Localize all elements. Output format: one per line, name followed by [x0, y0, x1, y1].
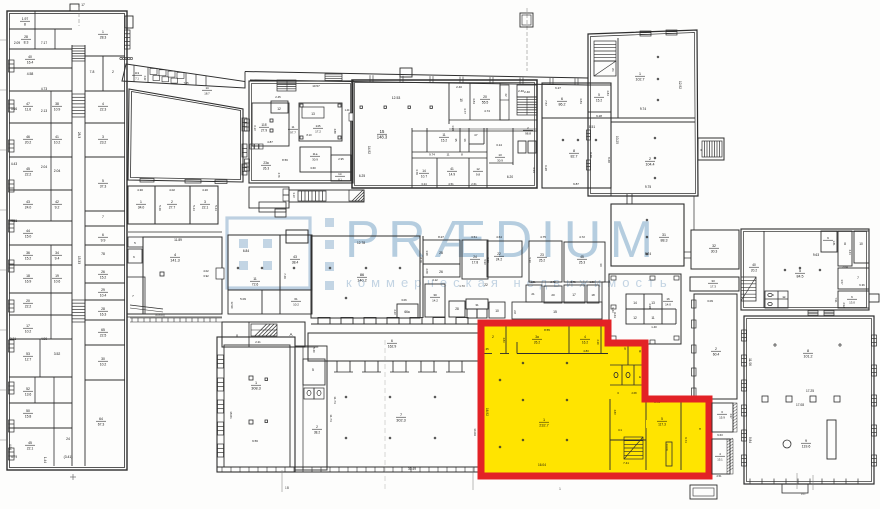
- svg-text:119: 119: [135, 71, 140, 75]
- svg-text:Д: Д: [639, 349, 641, 353]
- svg-text:22.1: 22.1: [27, 447, 34, 451]
- svg-text:Л1: Л1: [611, 68, 615, 72]
- svg-text:6.27: 6.27: [555, 86, 561, 90]
- svg-text:12.78: 12.78: [357, 241, 365, 245]
- svg-text:22.5: 22.5: [100, 334, 107, 338]
- svg-text:44: 44: [26, 229, 30, 233]
- svg-text:4.75: 4.75: [540, 235, 546, 239]
- svg-text:4.94: 4.94: [8, 444, 12, 450]
- svg-text:67.3: 67.3: [98, 423, 105, 427]
- svg-text:52: 52: [26, 387, 30, 391]
- svg-text:14.9: 14.9: [449, 173, 455, 177]
- svg-text:1.44: 1.44: [43, 457, 47, 463]
- svg-text:8.78: 8.78: [419, 257, 423, 263]
- svg-text:4 Г: 4 Г: [474, 133, 478, 137]
- svg-text:22: 22: [504, 93, 508, 97]
- svg-text:3: 3: [102, 135, 104, 139]
- svg-text:86.2: 86.2: [559, 103, 566, 107]
- svg-text:28.3: 28.3: [100, 36, 107, 40]
- svg-text:8.68: 8.68: [589, 152, 593, 158]
- svg-text:3.60: 3.60: [310, 166, 316, 170]
- svg-text:101.2: 101.2: [804, 355, 813, 359]
- svg-text:3.21: 3.21: [10, 337, 16, 341]
- svg-text:20.2: 20.2: [751, 269, 757, 273]
- svg-text:24: 24: [66, 437, 70, 441]
- svg-text:9.87: 9.87: [573, 182, 579, 186]
- svg-text:9.56: 9.56: [252, 439, 258, 443]
- svg-text:53: 53: [26, 352, 30, 356]
- svg-text:1: 1: [543, 418, 545, 422]
- svg-text:9.75: 9.75: [645, 185, 651, 189]
- svg-text:9.63: 9.63: [717, 433, 723, 437]
- svg-text:2.21: 2.21: [255, 340, 261, 344]
- svg-text:34: 34: [55, 251, 59, 255]
- svg-text:61: 61: [294, 297, 298, 301]
- svg-text:66а: 66а: [404, 310, 410, 314]
- svg-text:23.2: 23.2: [100, 141, 107, 145]
- svg-text:9.2: 9.2: [55, 206, 60, 210]
- svg-text:65: 65: [101, 328, 105, 332]
- svg-text:3.98: 3.98: [425, 250, 429, 256]
- svg-text:88.3: 88.3: [661, 239, 668, 243]
- svg-text:2: 2: [112, 70, 114, 74]
- svg-text:Восход: Восход: [155, 313, 165, 317]
- svg-text:15.33: 15.33: [77, 256, 81, 264]
- svg-text:15.8: 15.8: [25, 415, 32, 419]
- svg-text:29: 29: [101, 288, 105, 292]
- svg-text:72.6: 72.6: [252, 283, 259, 287]
- svg-text:4.45: 4.45: [11, 219, 17, 223]
- svg-text:2: 2: [492, 335, 494, 339]
- svg-text:6.36: 6.36: [859, 283, 865, 287]
- svg-text:16: 16: [666, 297, 670, 301]
- svg-text:6.10: 6.10: [253, 125, 257, 131]
- svg-text:26: 26: [439, 270, 443, 274]
- svg-text:11г: 11г: [338, 173, 342, 176]
- svg-text:14: 14: [205, 86, 209, 90]
- svg-text:12: 12: [476, 167, 480, 171]
- svg-text:2.72: 2.72: [550, 280, 556, 284]
- svg-text:3.75: 3.75: [570, 280, 576, 284]
- svg-text:30.9: 30.9: [497, 159, 503, 163]
- svg-text:5.44: 5.44: [192, 205, 196, 211]
- svg-text:13: 13: [311, 112, 315, 116]
- svg-text:9: 9: [624, 347, 626, 351]
- svg-text:11.06: 11.06: [748, 358, 752, 366]
- svg-text:8: 8: [807, 349, 809, 353]
- svg-text:2.95: 2.95: [338, 157, 344, 161]
- svg-text:50: 50: [26, 409, 30, 413]
- svg-text:20.2: 20.2: [25, 141, 32, 145]
- svg-text:15.2: 15.2: [25, 257, 32, 261]
- svg-text:17: 17: [572, 293, 576, 297]
- svg-text:1: 1: [140, 200, 142, 204]
- svg-text:Е: Е: [639, 375, 641, 379]
- svg-text:4.80: 4.80: [613, 409, 617, 415]
- svg-text:30: 30: [433, 293, 437, 297]
- svg-text:9.4: 9.4: [55, 257, 60, 261]
- svg-text:2.13: 2.13: [41, 109, 47, 113]
- svg-text:15.2: 15.2: [441, 139, 447, 143]
- svg-text:7: 7: [102, 215, 104, 219]
- svg-text:4: 4: [174, 253, 176, 257]
- svg-text:30.3: 30.3: [711, 250, 718, 254]
- svg-text:4.74: 4.74: [484, 109, 490, 113]
- svg-text:3.10: 3.10: [292, 192, 296, 198]
- svg-text:9.43: 9.43: [611, 307, 615, 313]
- svg-text:6: 6: [391, 339, 393, 343]
- svg-text:15.2: 15.2: [100, 276, 107, 280]
- svg-text:2: 2: [527, 126, 529, 130]
- svg-text:11: 11: [651, 316, 655, 320]
- svg-text:16.04: 16.04: [538, 463, 546, 467]
- svg-text:9.84: 9.84: [748, 437, 752, 443]
- svg-text:2.08: 2.08: [425, 268, 429, 274]
- svg-text:37.3: 37.3: [100, 185, 107, 189]
- svg-text:2.04: 2.04: [41, 165, 47, 169]
- svg-text:12.53: 12.53: [392, 96, 401, 100]
- svg-text:С1: С1: [618, 428, 622, 432]
- svg-text:5.09: 5.09: [240, 297, 246, 301]
- svg-text:4.64: 4.64: [496, 235, 502, 239]
- svg-text:8.10: 8.10: [306, 133, 312, 137]
- svg-text:9.74: 9.74: [429, 153, 435, 157]
- svg-text:18: 18: [591, 293, 595, 297]
- svg-text:21: 21: [531, 292, 535, 296]
- svg-text:2.8: 2.8: [513, 310, 517, 314]
- svg-text:30.9: 30.9: [312, 158, 318, 162]
- svg-text:28: 28: [455, 307, 459, 311]
- svg-text:12.7: 12.7: [25, 358, 32, 362]
- svg-text:34.0: 34.0: [138, 206, 145, 210]
- svg-text:9: 9: [805, 439, 807, 443]
- svg-text:17.25: 17.25: [806, 389, 814, 393]
- svg-text:42: 42: [55, 200, 59, 204]
- svg-text:41: 41: [55, 135, 59, 139]
- svg-text:31: 31: [662, 233, 666, 237]
- svg-text:7.41: 7.41: [623, 461, 629, 465]
- svg-text:2.51: 2.51: [716, 474, 722, 478]
- svg-text:4.88: 4.88: [333, 128, 337, 134]
- svg-text:15: 15: [459, 98, 463, 102]
- svg-text:19: 19: [55, 274, 59, 278]
- svg-text:1: 1: [639, 72, 641, 76]
- svg-text:45: 45: [28, 441, 32, 445]
- svg-text:38: 38: [55, 102, 59, 106]
- svg-text:2.39: 2.39: [596, 339, 600, 345]
- svg-text:140.2: 140.2: [357, 279, 367, 283]
- svg-text:13.09: 13.09: [665, 444, 669, 451]
- svg-text:8.51: 8.51: [589, 125, 595, 129]
- svg-text:П: П: [699, 427, 701, 431]
- svg-text:7: 7: [132, 294, 134, 298]
- svg-text:3.24: 3.24: [421, 182, 427, 186]
- svg-text:16.92: 16.92: [485, 408, 489, 416]
- svg-text:13.0: 13.0: [849, 301, 855, 305]
- svg-text:4.30: 4.30: [137, 188, 143, 192]
- svg-text:27.9: 27.9: [261, 129, 267, 133]
- svg-text:14б: 14б: [315, 124, 320, 128]
- svg-text:4.83: 4.83: [502, 337, 506, 343]
- svg-text:27.7: 27.7: [169, 206, 176, 210]
- svg-text:14.92: 14.92: [367, 146, 371, 154]
- svg-text:1.97: 1.97: [22, 17, 29, 21]
- svg-text:11: 11: [253, 277, 257, 281]
- svg-text:22: 22: [484, 283, 488, 287]
- svg-text:17.2: 17.2: [315, 130, 321, 134]
- svg-text:22.1: 22.1: [202, 206, 209, 210]
- svg-text:4.20: 4.20: [202, 188, 208, 192]
- svg-text:4.33: 4.33: [532, 167, 536, 173]
- svg-text:7.8: 7.8: [90, 70, 95, 74]
- svg-text:117.3: 117.3: [658, 423, 666, 427]
- svg-text:5: 5: [102, 179, 104, 183]
- svg-text:5: 5: [598, 93, 600, 97]
- svg-text:А: А: [289, 332, 292, 337]
- svg-text:7: 7: [857, 276, 859, 280]
- svg-text:5: 5: [661, 417, 663, 421]
- svg-text:60.4: 60.4: [713, 353, 720, 357]
- svg-text:9.8: 9.8: [476, 173, 481, 177]
- svg-text:2.40: 2.40: [456, 85, 462, 89]
- svg-text:9.74: 9.74: [684, 437, 688, 443]
- svg-text:12: 12: [633, 316, 637, 320]
- svg-text:14: 14: [633, 301, 637, 305]
- svg-text:232.7: 232.7: [539, 424, 549, 428]
- svg-text:14: 14: [422, 169, 426, 173]
- svg-text:30.49: 30.49: [408, 467, 416, 471]
- svg-text:141.3: 141.3: [170, 259, 180, 263]
- svg-text:40: 40: [752, 263, 756, 267]
- svg-text:4.83: 4.83: [583, 349, 589, 353]
- svg-text:2.98: 2.98: [648, 303, 652, 309]
- svg-text:11: 11: [446, 153, 449, 157]
- svg-text:20: 20: [483, 95, 487, 99]
- svg-text:18.81: 18.81: [229, 411, 233, 419]
- svg-text:6: 6: [102, 233, 104, 237]
- svg-text:13: 13: [498, 153, 502, 157]
- svg-text:98.8: 98.8: [525, 132, 531, 136]
- svg-text:45: 45: [580, 255, 584, 259]
- svg-text:15: 15: [380, 129, 385, 134]
- svg-text:18.7: 18.7: [204, 92, 210, 96]
- svg-text:1.81: 1.81: [832, 240, 836, 246]
- svg-text:9.63: 9.63: [813, 253, 819, 257]
- svg-text:2.45: 2.45: [275, 95, 281, 99]
- svg-text:4.97: 4.97: [729, 413, 733, 419]
- svg-text:7.91: 7.91: [834, 297, 838, 303]
- svg-text:4: 4: [102, 102, 104, 106]
- svg-text:3.78: 3.78: [415, 169, 419, 175]
- svg-text:40: 40: [28, 55, 32, 59]
- svg-text:1.40: 1.40: [651, 325, 657, 329]
- svg-text:10.57: 10.57: [312, 84, 320, 88]
- svg-text:10.2: 10.2: [54, 141, 61, 145]
- svg-text:15: 15: [553, 310, 557, 314]
- svg-text:2: 2: [316, 425, 318, 429]
- svg-text:20: 20: [26, 299, 30, 303]
- svg-text:2.09: 2.09: [14, 41, 20, 45]
- svg-text:97.7: 97.7: [290, 131, 296, 135]
- svg-text:10.7: 10.7: [421, 175, 427, 179]
- svg-text:25.3: 25.3: [579, 261, 585, 265]
- svg-text:22.2: 22.2: [25, 173, 32, 177]
- svg-text:24: 24: [473, 255, 477, 259]
- svg-text:22.3: 22.3: [100, 108, 107, 112]
- svg-text:3.12: 3.12: [432, 278, 438, 282]
- svg-text:5: 5: [134, 241, 136, 245]
- svg-text:9.28: 9.28: [596, 114, 602, 118]
- svg-text:22: 22: [497, 252, 501, 256]
- svg-text:1В: 1В: [285, 486, 290, 490]
- svg-text:162.9: 162.9: [388, 345, 397, 349]
- svg-text:10.2: 10.2: [25, 330, 32, 334]
- svg-text:1: 1: [255, 381, 257, 385]
- svg-text:16.2: 16.2: [582, 341, 588, 345]
- svg-text:6: 6: [851, 295, 853, 299]
- svg-text:1.80: 1.80: [589, 280, 595, 284]
- svg-text:5.44: 5.44: [214, 205, 218, 211]
- svg-text:41: 41: [450, 167, 454, 171]
- svg-text:11.74: 11.74: [329, 414, 333, 422]
- svg-text:4.76: 4.76: [277, 172, 281, 178]
- svg-text:4.90: 4.90: [41, 337, 47, 341]
- svg-text:31: 31: [475, 303, 479, 307]
- svg-text:3.14: 3.14: [496, 143, 502, 147]
- svg-text:32: 32: [712, 244, 716, 248]
- svg-text:11.74: 11.74: [333, 396, 337, 404]
- svg-text:104.4: 104.4: [646, 163, 655, 167]
- svg-text:3.66: 3.66: [11, 107, 17, 111]
- svg-text:84.5: 84.5: [797, 275, 804, 279]
- svg-text:3: 3: [721, 410, 723, 414]
- svg-text:23а: 23а: [263, 161, 269, 165]
- svg-text:2.92: 2.92: [842, 302, 846, 308]
- svg-text:11.89: 11.89: [174, 238, 182, 242]
- svg-text:28.3: 28.3: [77, 132, 81, 138]
- svg-text:(3.41): (3.41): [64, 455, 73, 459]
- svg-text:8: 8: [573, 149, 575, 153]
- svg-text:12: 12: [277, 107, 281, 111]
- svg-text:4.02: 4.02: [203, 269, 209, 273]
- svg-text:2.40: 2.40: [524, 90, 530, 94]
- svg-text:17.8: 17.8: [472, 261, 478, 265]
- svg-text:4: 4: [772, 293, 774, 297]
- svg-text:33: 33: [711, 279, 715, 283]
- svg-text:24.2: 24.2: [496, 258, 502, 262]
- svg-text:35: 35: [454, 138, 458, 142]
- svg-text:10.2: 10.2: [293, 303, 299, 307]
- svg-text:10.9: 10.9: [54, 108, 61, 112]
- svg-text:5.90: 5.90: [486, 257, 490, 263]
- svg-text:23: 23: [540, 253, 544, 257]
- svg-text:15.0: 15.0: [25, 235, 32, 239]
- svg-text:3.51: 3.51: [471, 235, 477, 239]
- svg-text:14.0: 14.0: [665, 303, 671, 307]
- svg-text:1.98: 1.98: [451, 125, 455, 131]
- svg-text:6.28: 6.28: [544, 165, 548, 171]
- svg-text:22.2: 22.2: [25, 305, 32, 309]
- svg-text:4.83: 4.83: [579, 98, 583, 104]
- svg-text:6.25: 6.25: [359, 174, 365, 178]
- svg-text:16.4: 16.4: [27, 61, 34, 65]
- svg-text:5.29: 5.29: [158, 205, 162, 211]
- svg-text:4.87: 4.87: [267, 140, 273, 144]
- svg-text:8.56: 8.56: [282, 158, 288, 162]
- svg-text:16.9: 16.9: [25, 280, 32, 284]
- svg-text:10: 10: [495, 309, 499, 313]
- svg-text:86: 86: [360, 273, 364, 277]
- svg-text:4.6: 4.6: [599, 263, 603, 267]
- svg-text:3.06: 3.06: [401, 298, 407, 302]
- svg-text:6: 6: [561, 97, 563, 101]
- svg-text:4.51: 4.51: [448, 182, 454, 186]
- svg-text:4: 4: [584, 335, 586, 339]
- svg-text:7: 7: [400, 413, 402, 417]
- svg-text:6.84: 6.84: [243, 249, 249, 253]
- svg-text:4.79: 4.79: [11, 455, 17, 459]
- svg-text:Ш: Ш: [783, 295, 786, 299]
- svg-text:3.52: 3.52: [54, 352, 61, 356]
- svg-text:2: 2: [715, 347, 717, 351]
- svg-text:26.2: 26.2: [534, 341, 540, 345]
- svg-text:4.84: 4.84: [472, 98, 476, 104]
- svg-text:3.09: 3.09: [707, 299, 713, 303]
- svg-text:1: 1: [102, 30, 104, 34]
- svg-text:11.6: 11.6: [25, 108, 31, 112]
- svg-text:82.7: 82.7: [571, 155, 578, 159]
- svg-text:1: 1: [559, 487, 561, 491]
- svg-text:16: 16: [463, 138, 467, 142]
- svg-text:24.0: 24.0: [25, 206, 32, 210]
- svg-text:38.4: 38.4: [292, 261, 299, 265]
- svg-text:12.90: 12.90: [230, 302, 234, 309]
- svg-text:4: 4: [719, 452, 721, 456]
- svg-text:7.1: 7.1: [135, 77, 139, 81]
- svg-text:30: 30: [101, 357, 105, 361]
- svg-text:7.57: 7.57: [544, 100, 548, 106]
- svg-text:46: 46: [26, 135, 30, 139]
- svg-text:15.9: 15.9: [719, 416, 725, 420]
- svg-text:28: 28: [101, 307, 105, 311]
- svg-text:6: 6: [133, 255, 135, 259]
- svg-text:5: 5: [799, 269, 801, 273]
- svg-text:2.61: 2.61: [471, 182, 477, 186]
- svg-text:2.68: 2.68: [631, 391, 637, 395]
- svg-text:8.3: 8.3: [24, 41, 29, 45]
- svg-text:28: 28: [24, 35, 28, 39]
- svg-text:9.9: 9.9: [101, 239, 106, 243]
- svg-text:25: 25: [439, 251, 443, 255]
- svg-text:4.58: 4.58: [27, 72, 34, 76]
- svg-text:6.20: 6.20: [507, 175, 513, 179]
- svg-text:9.63: 9.63: [613, 312, 617, 318]
- svg-text:9.74: 9.74: [640, 107, 646, 111]
- svg-text:4.84: 4.84: [606, 90, 610, 96]
- svg-text:11б: 11б: [261, 123, 266, 127]
- svg-text:10.6: 10.6: [54, 280, 61, 284]
- svg-text:26.3: 26.3: [263, 167, 269, 171]
- svg-text:10.25: 10.25: [615, 136, 619, 144]
- svg-text:26: 26: [101, 270, 105, 274]
- svg-text:78: 78: [101, 252, 105, 256]
- svg-text:11: 11: [442, 133, 446, 137]
- svg-text:119.6: 119.6: [802, 445, 811, 449]
- svg-text:17.08: 17.08: [796, 403, 804, 407]
- svg-text:45: 45: [26, 167, 30, 171]
- svg-text:20: 20: [551, 293, 555, 297]
- svg-text:38.2: 38.2: [314, 431, 320, 435]
